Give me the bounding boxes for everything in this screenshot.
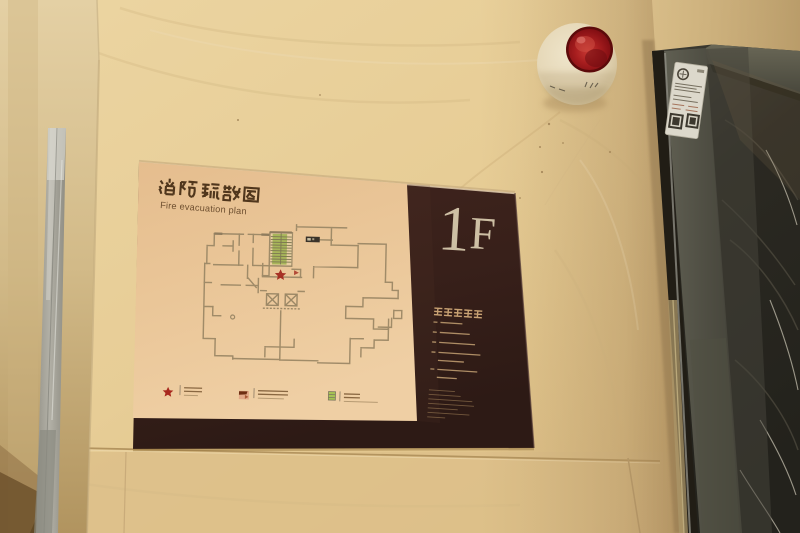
svg-text:1: 1	[436, 192, 472, 265]
svg-text:F: F	[468, 207, 497, 259]
